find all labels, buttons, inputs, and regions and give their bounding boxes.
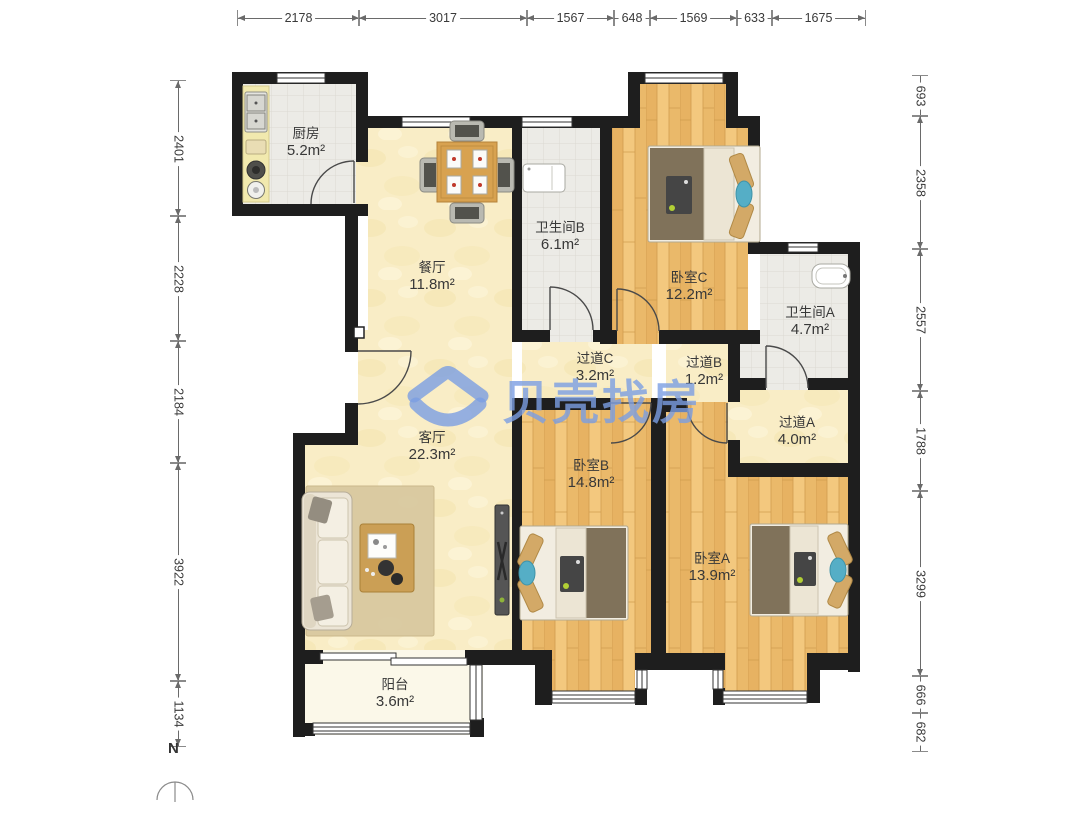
bed-a-bay-window [723, 691, 807, 703]
dim-top-2: 1567 [526, 10, 615, 26]
tv [495, 505, 509, 615]
dim-left-2: 2184 [170, 340, 186, 464]
bath-a-window [788, 243, 818, 252]
room-label-bed-b: 卧室B 14.8m² [568, 458, 615, 492]
dim-top-0: 2178 [237, 10, 360, 26]
room-label-kitchen: 厨房 5.2m² [287, 126, 325, 160]
dim-right-1: 2358 [912, 115, 928, 250]
room-label-bed-a: 卧室A 13.9m² [689, 551, 736, 585]
compass-north-label: N [168, 740, 179, 757]
kitchen-counter [243, 86, 269, 202]
dim-left-1: 2228 [170, 215, 186, 342]
room-name: 厨房 [287, 126, 325, 142]
dim-top-4: 1569 [649, 10, 738, 26]
dim-left-3: 3922 [170, 462, 186, 682]
bay-side-window [713, 670, 723, 689]
bed-c [648, 146, 760, 242]
coffee-table [360, 524, 414, 592]
room-label-bath-b: 卫生间B 6.1m² [535, 220, 585, 254]
room-label-living: 客厅 22.3m² [409, 430, 456, 464]
balcony-window [313, 723, 470, 734]
bed-c-window [645, 73, 723, 83]
dim-right-2: 2557 [912, 248, 928, 392]
dim-top-6: 1675 [771, 10, 866, 26]
dim-right-0: 693 [912, 75, 928, 117]
dim-top-3: 648 [613, 10, 651, 26]
bed-b [516, 526, 628, 620]
bay-side-window [637, 670, 647, 689]
room-label-balcony: 阳台 3.6m² [376, 677, 414, 711]
dim-top-5: 633 [736, 10, 773, 26]
dim-left-0: 2401 [170, 80, 186, 217]
bathtub [812, 264, 850, 288]
floorplan-page: 厨房 5.2m² 餐厅 11.8m² 卫生间B 6.1m² 卧室C 12.2m²… [0, 0, 1082, 822]
dim-right-4: 3299 [912, 490, 928, 677]
compass: N [150, 740, 210, 822]
dim-left-4: 1134 [170, 680, 186, 747]
room-label-hall-a: 过道A 4.0m² [778, 415, 816, 449]
sofa [302, 492, 352, 630]
dim-right-6: 682 [912, 712, 928, 752]
room-label-bath-a: 卫生间A 4.7m² [785, 305, 835, 339]
room-area: 5.2m² [287, 142, 325, 160]
room-label-dining: 餐厅 11.8m² [409, 260, 455, 294]
dim-top-1: 3017 [358, 10, 528, 26]
dim-right-3: 1788 [912, 390, 928, 492]
bed-a [750, 524, 854, 616]
room-label-hall-c: 过道C 3.2m² [576, 351, 614, 385]
bed-b-bay-window [552, 691, 635, 703]
bath-b-window [522, 117, 572, 127]
room-label-hall-b: 过道B 1.2m² [685, 355, 723, 389]
balcony-side-window [470, 665, 482, 720]
washing-machine [523, 164, 565, 192]
room-label-bed-c: 卧室C 12.2m² [666, 270, 713, 304]
kitchen-window [277, 73, 325, 83]
dim-right-5: 666 [912, 675, 928, 714]
